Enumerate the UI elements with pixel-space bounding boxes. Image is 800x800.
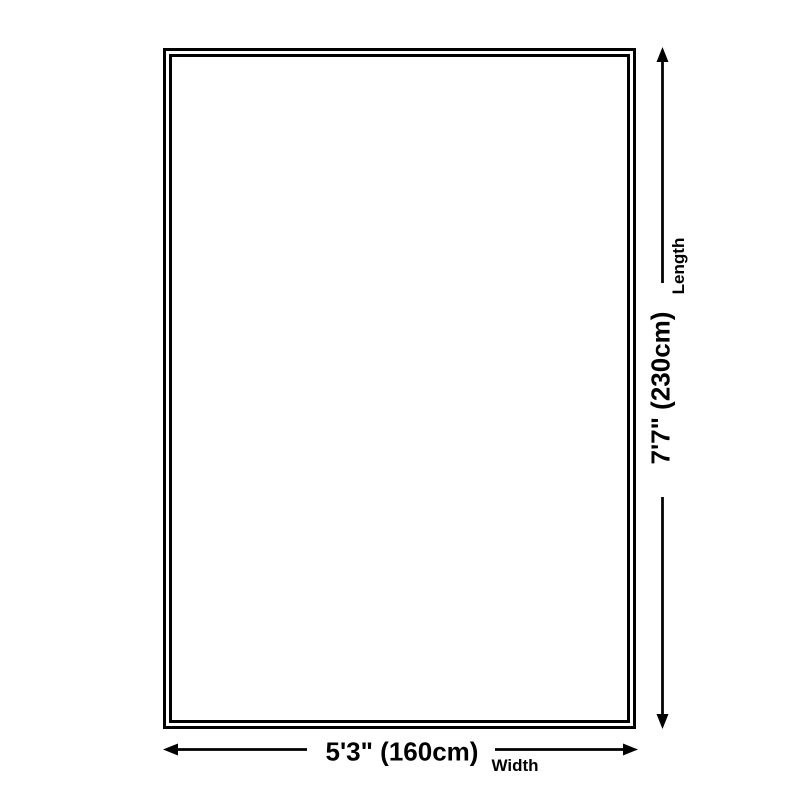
width-value: 5'3" (160cm)	[326, 737, 479, 768]
width-arrow-left-icon	[163, 744, 307, 756]
width-arrow-right-icon	[495, 744, 638, 756]
width-label: Width	[491, 756, 538, 776]
length-value: 7'7" (230cm)	[646, 312, 677, 465]
rug-size-diagram: 7'7" (230cm) Length 5'3" (160cm) Width	[0, 0, 800, 800]
length-arrow-down-icon	[657, 497, 669, 729]
length-label: Length	[669, 238, 689, 295]
rug-inner-border	[169, 54, 630, 723]
rug-outline	[163, 48, 636, 729]
length-arrow-up-icon	[657, 47, 669, 283]
